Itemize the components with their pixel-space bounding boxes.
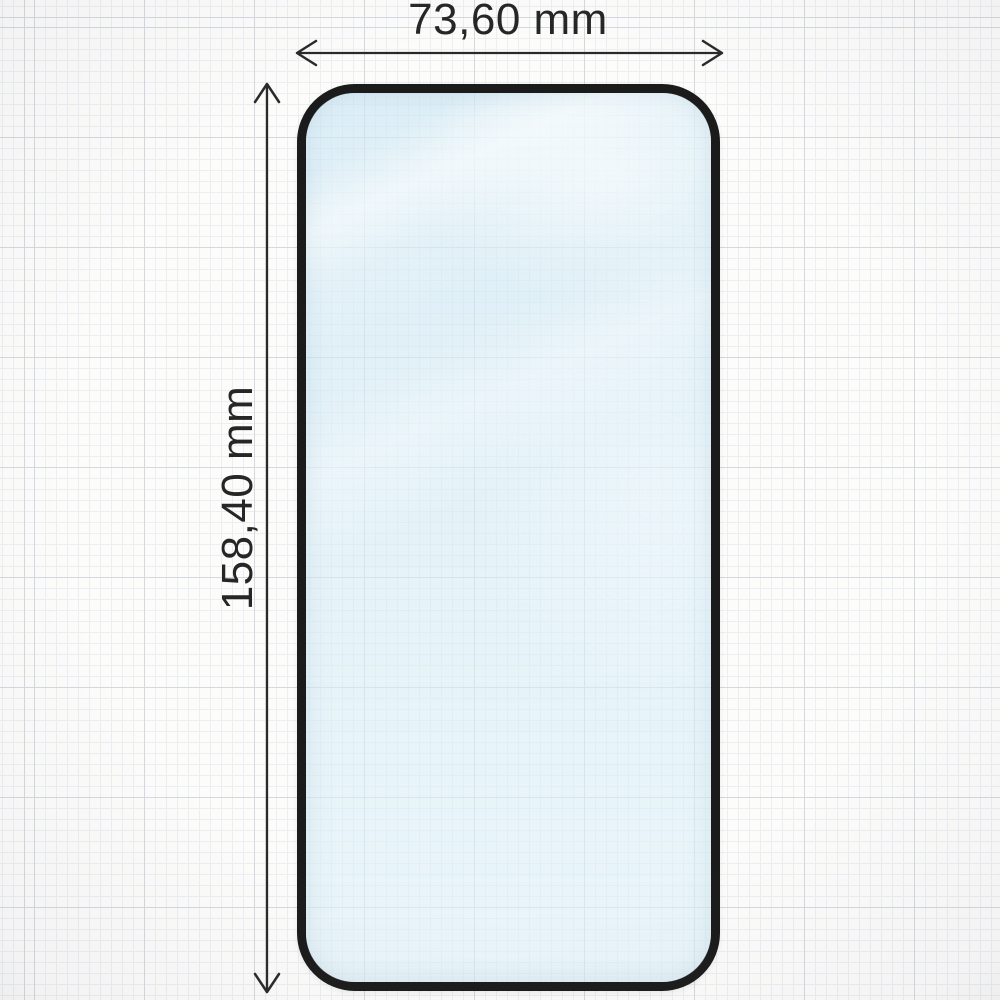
width-dimension-arrow-icon	[297, 41, 722, 65]
graph-paper-canvas: 73,60 mm 158,40 mm	[0, 0, 1000, 1000]
width-dimension-label: 73,60 mm	[408, 0, 608, 42]
glass-surface	[306, 93, 711, 982]
height-dimension-label: 158,40 mm	[216, 386, 260, 611]
screen-protector	[297, 84, 720, 991]
